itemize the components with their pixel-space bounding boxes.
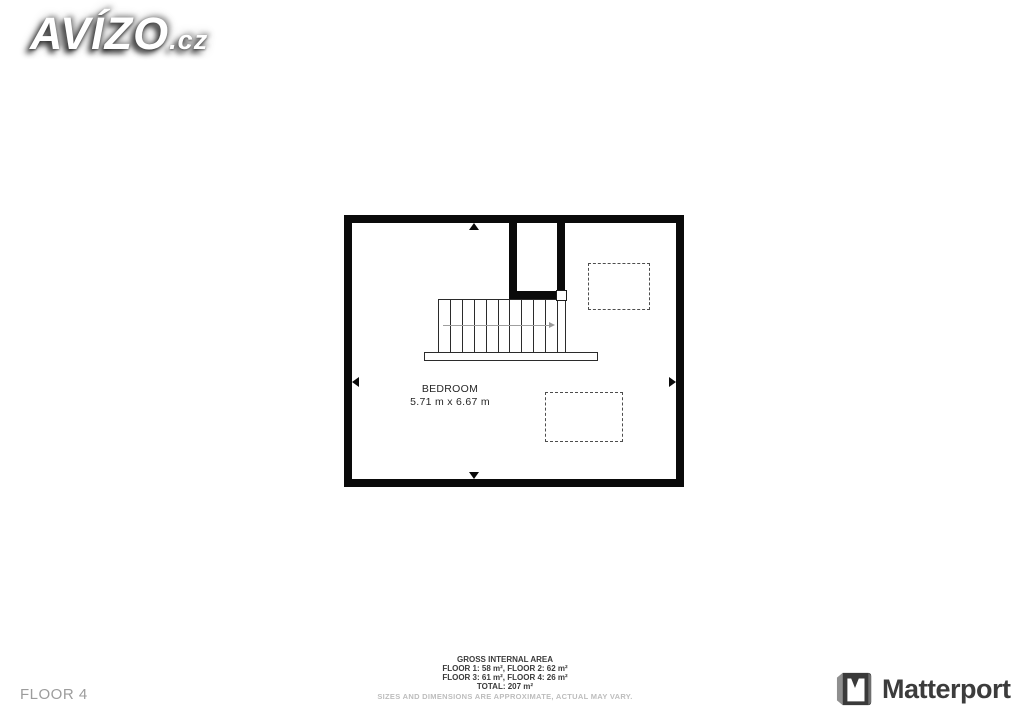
stair-newel-post [556, 290, 567, 301]
area-total: TOTAL: 207 m² [377, 682, 632, 691]
wall-marker-arrow-down-icon [469, 472, 479, 479]
matterport-logo: Matterport [836, 670, 1011, 708]
staircase [438, 299, 566, 353]
matterport-wordmark: Matterport [882, 670, 1011, 708]
stair-tread [475, 300, 487, 352]
wall-marker-arrow-right-icon [669, 377, 676, 387]
stair-tread [558, 300, 565, 352]
area-disclaimer: SIZES AND DIMENSIONS ARE APPROXIMATE, AC… [377, 692, 632, 701]
stair-tread [534, 300, 546, 352]
area-line-1: FLOOR 1: 58 m², FLOOR 2: 62 m² [377, 664, 632, 673]
area-line-2: FLOOR 3: 61 m², FLOOR 4: 26 m² [377, 673, 632, 682]
avizo-domain-suffix: .cz [169, 25, 208, 55]
wall-marker-arrow-up-icon [469, 223, 479, 230]
skylight-dashed-outline-1 [588, 263, 650, 310]
avizo-watermark-logo: AVÍZO.cz [30, 8, 208, 60]
stair-tread [510, 300, 522, 352]
avizo-brand-text: AVÍZO [30, 8, 169, 59]
floorplan-page: AVÍZO.cz BEDROOM 5.71 m x 6.67 m FLOOR 4… [0, 0, 1024, 725]
floorplan-drawing: BEDROOM 5.71 m x 6.67 m [344, 215, 684, 487]
stair-landing-edge [424, 352, 598, 361]
matterport-m-icon [836, 670, 874, 708]
room-name: BEDROOM [380, 383, 520, 396]
skylight-dashed-outline-2 [545, 392, 623, 442]
stair-direction-arrow-icon [443, 325, 549, 326]
stair-tread [499, 300, 511, 352]
stair-tread [451, 300, 463, 352]
stair-tread [463, 300, 475, 352]
stair-tread [522, 300, 534, 352]
wall-marker-arrow-left-icon [352, 377, 359, 387]
room-label: BEDROOM 5.71 m x 6.67 m [380, 383, 520, 409]
stair-tread [439, 300, 451, 352]
stairwell-wall-left [509, 223, 517, 299]
floor-label: FLOOR 4 [20, 686, 88, 703]
stair-tread [487, 300, 499, 352]
gross-internal-area-summary: GROSS INTERNAL AREA FLOOR 1: 58 m², FLOO… [377, 655, 632, 701]
stairwell-wall-right [557, 223, 565, 291]
area-title: GROSS INTERNAL AREA [377, 655, 632, 664]
room-dimensions: 5.71 m x 6.67 m [380, 396, 520, 409]
